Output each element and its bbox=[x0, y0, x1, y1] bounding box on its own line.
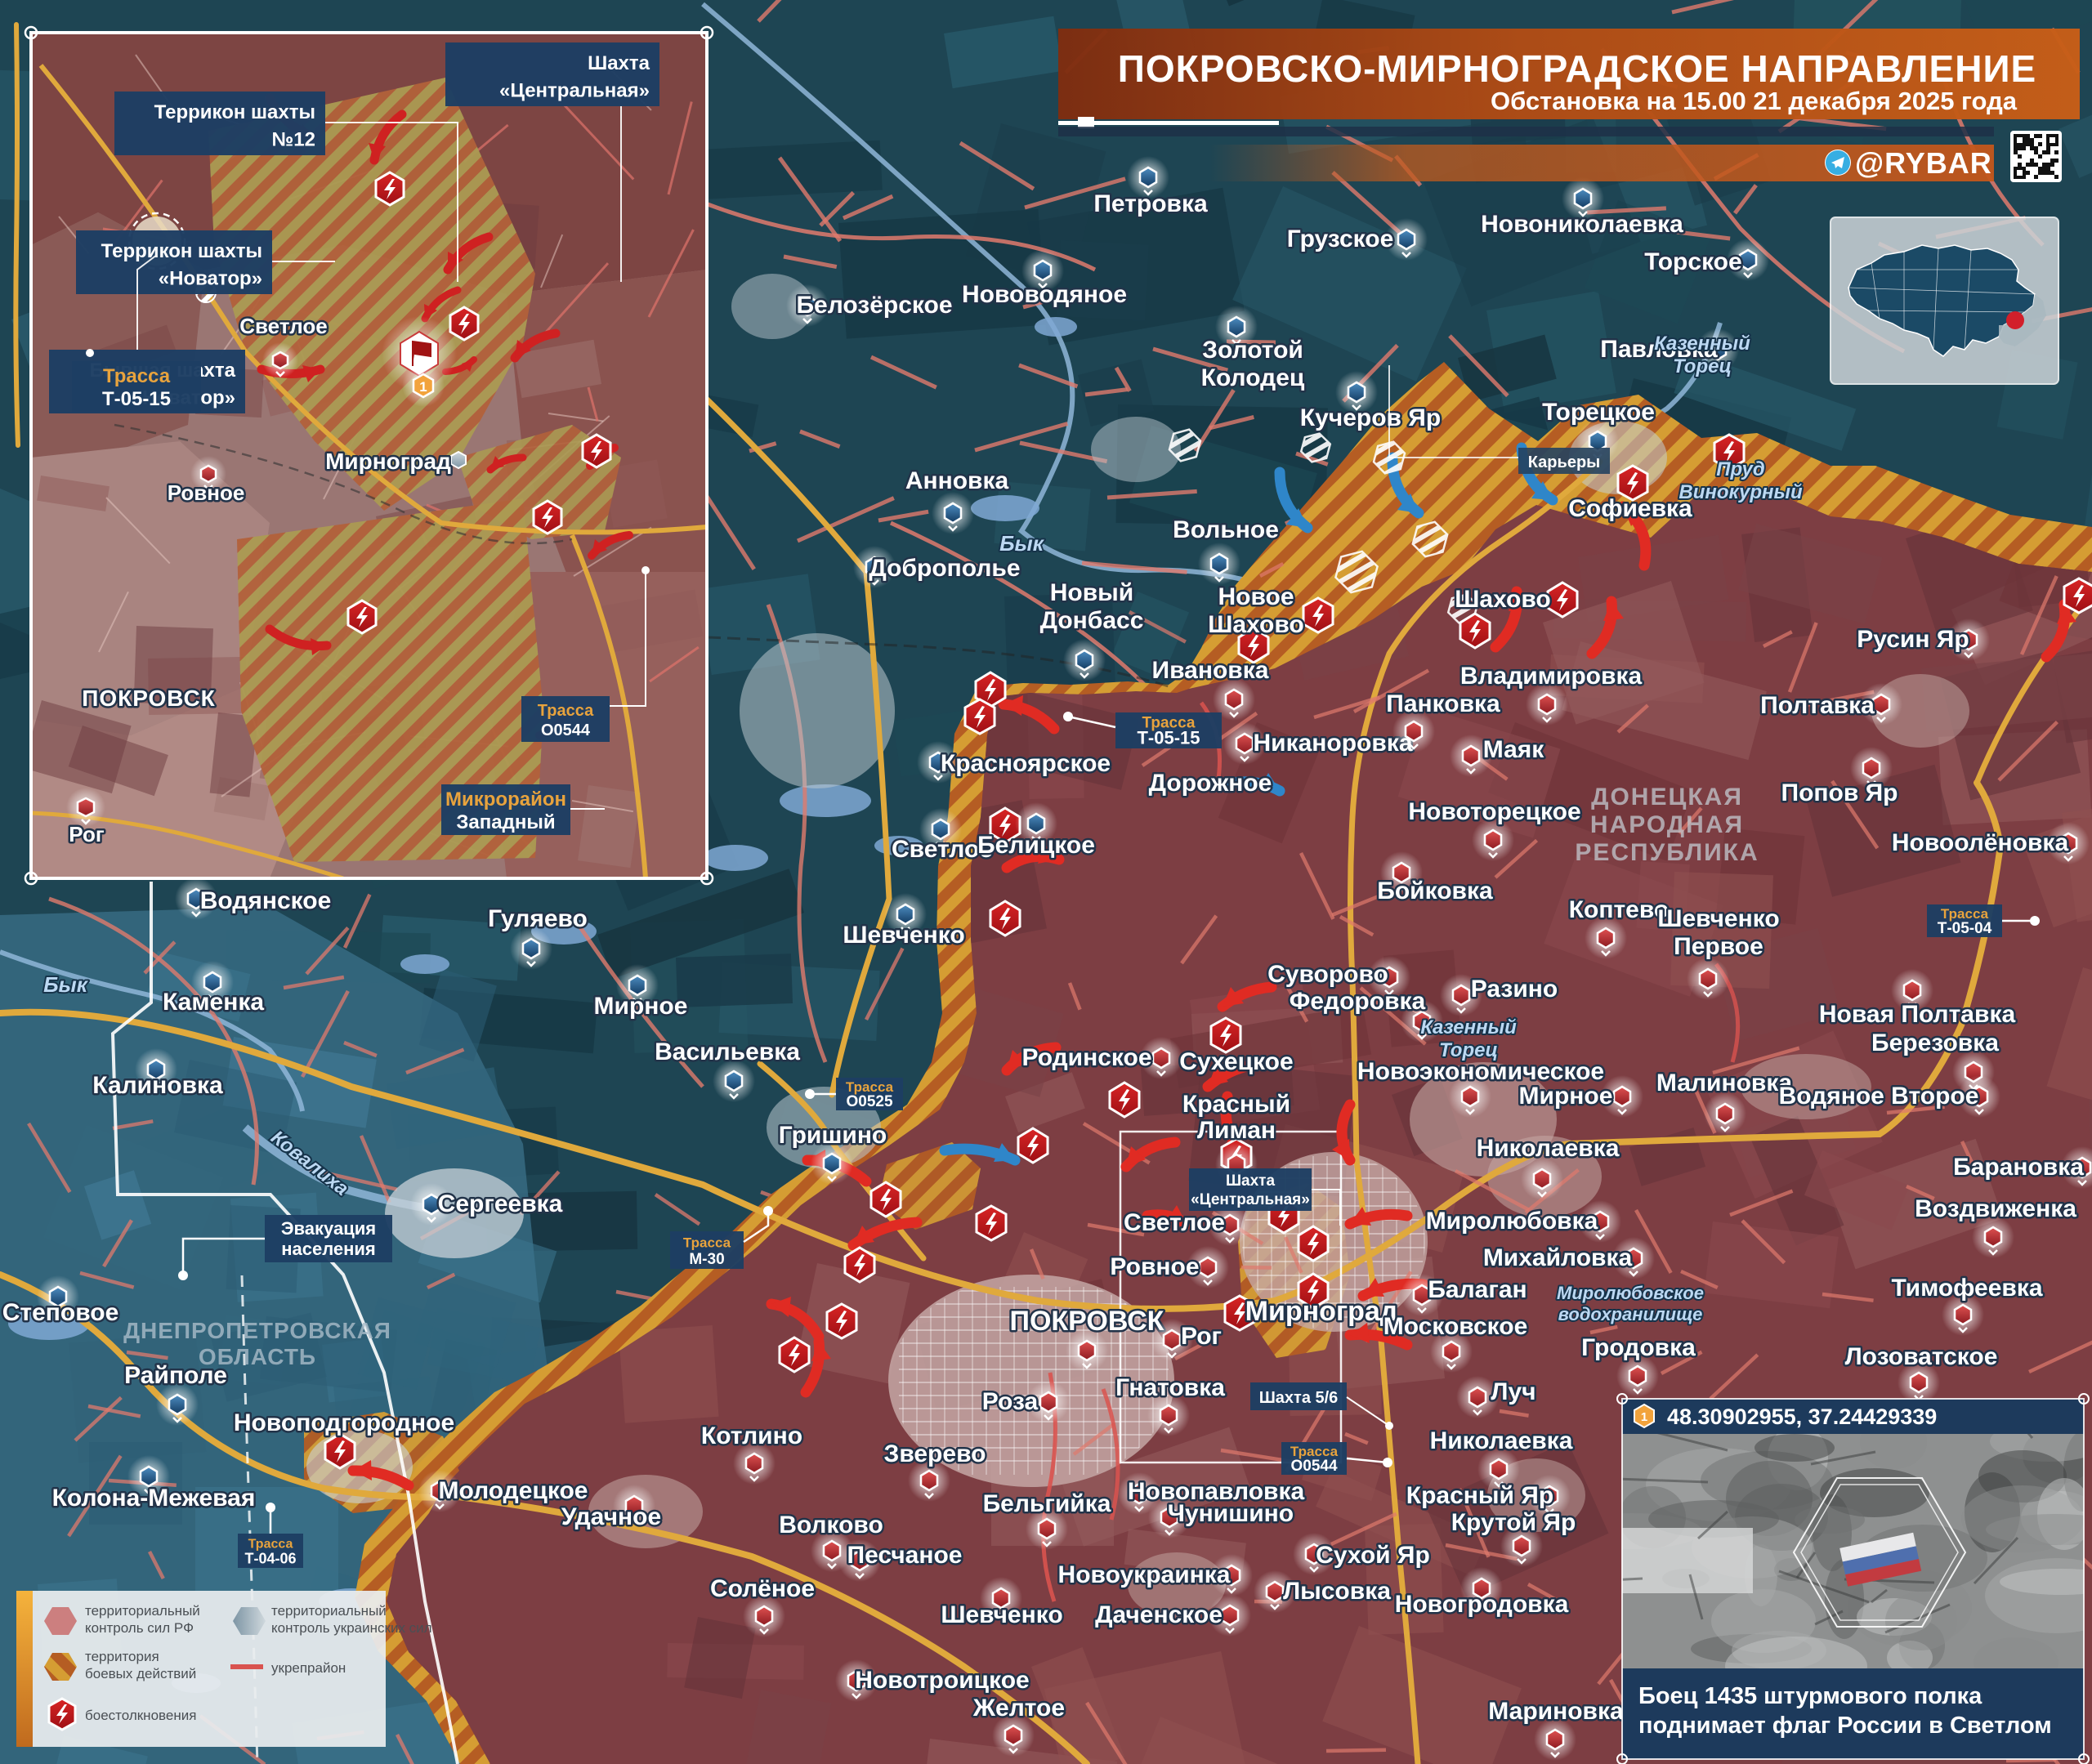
svg-text:Удачное: Удачное bbox=[561, 1503, 661, 1530]
svg-text:Коптево: Коптево bbox=[1569, 896, 1670, 923]
svg-text:Крутой Яр: Крутой Яр bbox=[1451, 1509, 1576, 1536]
svg-text:контроль украинских сил: контроль украинских сил bbox=[271, 1620, 432, 1636]
svg-text:Песчаное: Песчаное bbox=[847, 1542, 963, 1569]
svg-text:Шевченко: Шевченко bbox=[843, 922, 964, 949]
svg-text:Калиновка: Калиновка bbox=[92, 1072, 223, 1099]
svg-text:1: 1 bbox=[419, 379, 427, 395]
svg-text:Колона-Межевая: Колона-Межевая bbox=[52, 1485, 256, 1512]
svg-text:Анновка: Анновка bbox=[905, 467, 1009, 494]
svg-text:Трасса: Трасса bbox=[103, 365, 171, 387]
svg-text:Карьеры: Карьеры bbox=[1528, 453, 1601, 471]
svg-text:Т-05-15: Т-05-15 bbox=[1137, 727, 1200, 748]
svg-text:Даченское: Даченское bbox=[1095, 1601, 1223, 1628]
svg-text:Михайловка: Михайловка bbox=[1483, 1244, 1633, 1271]
svg-text:Новый: Новый bbox=[1050, 579, 1134, 606]
svg-text:Новоподгородное: Новоподгородное bbox=[234, 1409, 454, 1436]
svg-text:контроль сил РФ: контроль сил РФ bbox=[85, 1620, 194, 1636]
svg-text:Гришино: Гришино bbox=[779, 1122, 887, 1149]
svg-text:Пруд: Пруд bbox=[1716, 458, 1764, 480]
svg-text:Родинское: Родинское bbox=[1021, 1044, 1151, 1071]
svg-text:территориальный: территориальный bbox=[85, 1603, 200, 1619]
svg-text:Новоукраинка: Новоукраинка bbox=[1058, 1561, 1231, 1588]
svg-text:Микрорайон: Микрорайон bbox=[445, 788, 566, 811]
svg-text:Трасса: Трасса bbox=[538, 702, 594, 720]
svg-text:поднимает флаг России в Светло: поднимает флаг России в Светлом bbox=[1638, 1713, 2052, 1739]
svg-text:Каменка: Каменка bbox=[163, 989, 264, 1016]
svg-text:Разино: Разино bbox=[1471, 976, 1558, 1003]
svg-text:Сухецкое: Сухецкое bbox=[1179, 1048, 1293, 1075]
svg-text:Водяное Второе: Водяное Второе bbox=[1779, 1083, 1979, 1110]
svg-text:Мирное: Мирное bbox=[594, 993, 688, 1020]
svg-text:Т-05-15: Т-05-15 bbox=[102, 388, 171, 410]
svg-text:Торское: Торское bbox=[1644, 248, 1741, 275]
svg-text:Воздвиженка: Воздвиженка bbox=[1915, 1195, 2076, 1222]
svg-text:Дорожное: Дорожное bbox=[1149, 770, 1272, 797]
svg-text:Маяк: Маяк bbox=[1483, 736, 1545, 763]
svg-text:48.30902955, 37.24429339: 48.30902955, 37.24429339 bbox=[1667, 1405, 1937, 1429]
svg-text:Лозоватское: Лозоватское bbox=[1845, 1343, 1998, 1370]
svg-text:Бельгийка: Бельгийка bbox=[983, 1490, 1111, 1517]
svg-text:ОБЛАСТЬ: ОБЛАСТЬ bbox=[199, 1344, 316, 1369]
svg-text:Шевченко: Шевченко bbox=[941, 1601, 1062, 1628]
svg-text:Трасса: Трасса bbox=[683, 1235, 731, 1250]
svg-text:Казенный: Казенный bbox=[1654, 333, 1750, 355]
svg-text:Рог: Рог bbox=[69, 822, 105, 846]
svg-text:Новоэкономическое: Новоэкономическое bbox=[1357, 1058, 1604, 1085]
svg-text:Сухой Яр: Сухой Яр bbox=[1316, 1542, 1430, 1569]
svg-text:Софиевка: Софиевка bbox=[1568, 495, 1692, 522]
svg-text:Владимировка: Владимировка bbox=[1460, 663, 1643, 690]
svg-text:Шахта 5/6: Шахта 5/6 bbox=[1259, 1389, 1339, 1407]
svg-text:М-30: М-30 bbox=[689, 1251, 724, 1268]
svg-text:Лысовка: Лысовка bbox=[1283, 1578, 1391, 1605]
svg-text:Рог: Рог bbox=[1181, 1323, 1222, 1350]
svg-text:Кучеров Яр: Кучеров Яр bbox=[1300, 404, 1441, 431]
svg-text:«Центральная»: «Центральная» bbox=[499, 79, 650, 101]
svg-text:Казенный: Казенный bbox=[1420, 1016, 1517, 1038]
svg-text:Миролюбовка: Миролюбовка bbox=[1426, 1208, 1598, 1235]
svg-text:Желтое: Желтое bbox=[972, 1695, 1065, 1722]
svg-text:Гродовка: Гродовка bbox=[1581, 1334, 1696, 1361]
svg-text:Федоровка: Федоровка bbox=[1290, 988, 1426, 1015]
svg-text:Т-04-06: Т-04-06 bbox=[244, 1551, 296, 1567]
svg-text:ПОКРОВСКО-МИРНОГРАДСКОЕ НАПРАВ: ПОКРОВСКО-МИРНОГРАДСКОЕ НАПРАВЛЕНИЕ bbox=[1118, 47, 2036, 90]
svg-text:Бык: Бык bbox=[999, 531, 1045, 556]
svg-text:Красноярское: Красноярское bbox=[941, 750, 1111, 777]
svg-text:Никаноровка: Никаноровка bbox=[1253, 730, 1412, 757]
svg-text:Солёное: Солёное bbox=[710, 1575, 815, 1602]
svg-text:Молодецкое: Молодецкое bbox=[439, 1477, 588, 1504]
svg-text:Нововодяное: Нововодяное bbox=[962, 281, 1127, 308]
svg-text:Шахово: Шахово bbox=[1208, 611, 1303, 638]
svg-text:Ровное: Ровное bbox=[1110, 1253, 1199, 1280]
svg-text:Вольное: Вольное bbox=[1173, 516, 1279, 543]
svg-text:О0544: О0544 bbox=[541, 721, 591, 739]
svg-text:Террикон шахты: Террикон шахты bbox=[101, 240, 262, 262]
svg-text:Малиновка: Малиновка bbox=[1656, 1070, 1792, 1096]
svg-text:ДОНЕЦКАЯ: ДОНЕЦКАЯ bbox=[1591, 784, 1743, 811]
svg-text:Эвакуация: Эвакуация bbox=[281, 1218, 376, 1239]
svg-text:Барановка: Барановка bbox=[1953, 1154, 2084, 1181]
svg-text:Шевченко: Шевченко bbox=[1657, 905, 1779, 932]
svg-text:Грузское: Грузское bbox=[1287, 226, 1394, 252]
svg-text:1: 1 bbox=[1641, 1410, 1647, 1424]
svg-text:Котлино: Котлино bbox=[701, 1422, 802, 1449]
svg-text:Ивановка: Ивановка bbox=[1152, 657, 1269, 684]
svg-text:Шахта: Шахта bbox=[1226, 1172, 1276, 1190]
svg-text:Бойковка: Бойковка bbox=[1377, 878, 1493, 904]
svg-text:Николаевка: Николаевка bbox=[1477, 1135, 1620, 1162]
svg-text:Сергеевка: Сергеевка bbox=[438, 1190, 563, 1217]
svg-text:Торец: Торец bbox=[1439, 1039, 1498, 1061]
svg-text:Зверево: Зверево bbox=[884, 1440, 986, 1467]
svg-text:Балаган: Балаган bbox=[1428, 1276, 1527, 1303]
svg-text:Луч: Луч bbox=[1491, 1378, 1535, 1405]
svg-text:Полтавка: Полтавка bbox=[1760, 692, 1875, 719]
svg-text:Панковка: Панковка bbox=[1386, 690, 1500, 717]
svg-text:Мирноград: Мирноград bbox=[325, 449, 451, 474]
svg-text:«Центральная»: «Центральная» bbox=[1191, 1191, 1310, 1208]
svg-text:Степовое: Степовое bbox=[2, 1299, 119, 1326]
svg-text:Светлое: Светлое bbox=[239, 314, 327, 338]
svg-text:Московское: Московское bbox=[1383, 1313, 1528, 1340]
svg-text:Трасса: Трасса bbox=[248, 1538, 293, 1552]
svg-text:О0525: О0525 bbox=[846, 1093, 892, 1110]
svg-text:Новоторецкое: Новоторецкое bbox=[1408, 798, 1580, 825]
svg-text:Попов Яр: Попов Яр bbox=[1781, 779, 1898, 806]
svg-text:Гуляево: Гуляево bbox=[488, 905, 588, 932]
svg-text:Торец: Торец bbox=[1673, 355, 1732, 377]
svg-text:Белицкое: Белицкое bbox=[977, 832, 1095, 859]
svg-text:Роза: Роза bbox=[982, 1388, 1039, 1415]
svg-text:ДНЕПРОПЕТРОВСКАЯ: ДНЕПРОПЕТРОВСКАЯ bbox=[123, 1318, 391, 1343]
svg-text:населения: населения bbox=[281, 1239, 376, 1259]
svg-text:Светлое: Светлое bbox=[1124, 1209, 1225, 1236]
svg-text:Мариновка: Мариновка bbox=[1488, 1698, 1624, 1725]
svg-text:Торецкое: Торецкое bbox=[1542, 399, 1655, 426]
svg-text:Винокурный: Винокурный bbox=[1679, 481, 1803, 503]
svg-text:Николаевка: Николаевка bbox=[1430, 1427, 1573, 1454]
svg-text:Красный Яр: Красный Яр bbox=[1406, 1482, 1553, 1509]
svg-text:Ровное: Ровное bbox=[168, 480, 245, 505]
svg-text:НАРОДНАЯ: НАРОДНАЯ bbox=[1590, 811, 1744, 838]
svg-text:Колодец: Колодец bbox=[1201, 364, 1305, 391]
svg-text:Новониколаевка: Новониколаевка bbox=[1481, 211, 1683, 238]
svg-text:Суворово: Суворово bbox=[1267, 961, 1388, 988]
svg-text:@RYBAR: @RYBAR bbox=[1855, 146, 1992, 180]
svg-text:Березовка: Березовка bbox=[1871, 1029, 1999, 1056]
svg-text:Красный: Красный bbox=[1182, 1091, 1290, 1118]
svg-text:Новоолёновка: Новоолёновка bbox=[1892, 829, 2069, 856]
svg-text:Доброполье: Доброполье bbox=[869, 555, 1020, 582]
svg-text:Гнатовка: Гнатовка bbox=[1115, 1374, 1225, 1401]
svg-text:Мирное: Мирное bbox=[1519, 1083, 1613, 1110]
svg-text:Миролюбовское: Миролюбовское bbox=[1557, 1283, 1704, 1303]
svg-text:№12: №12 bbox=[272, 128, 315, 150]
svg-text:Мирноград: Мирноград bbox=[1245, 1296, 1398, 1327]
svg-text:Васильевка: Васильевка bbox=[655, 1038, 800, 1065]
svg-text:Водянское: Водянское bbox=[200, 887, 332, 914]
svg-text:О0544: О0544 bbox=[1290, 1458, 1337, 1475]
svg-text:Т-05-04: Т-05-04 bbox=[1938, 920, 1992, 937]
svg-text:РЕСПУБЛИКА: РЕСПУБЛИКА bbox=[1575, 839, 1759, 866]
svg-text:укрепрайон: укрепрайон bbox=[271, 1660, 346, 1676]
svg-text:Новая Полтавка: Новая Полтавка bbox=[1819, 1001, 2016, 1028]
svg-text:Боец 1435 штурмового полка: Боец 1435 штурмового полка bbox=[1638, 1683, 1982, 1709]
svg-text:Белозёрское: Белозёрское bbox=[796, 292, 952, 319]
svg-text:Западный: Западный bbox=[456, 811, 555, 833]
svg-text:боестолкновения: боестолкновения bbox=[85, 1708, 196, 1723]
svg-text:Новотроицкое: Новотроицкое bbox=[855, 1667, 1029, 1694]
svg-text:Лиман: Лиман bbox=[1197, 1117, 1276, 1144]
svg-text:Террикон шахты: Террикон шахты bbox=[154, 101, 315, 123]
svg-text:Петровка: Петровка bbox=[1093, 190, 1208, 217]
svg-text:Новогродовка: Новогродовка bbox=[1395, 1591, 1569, 1618]
svg-text:Бык: Бык bbox=[43, 972, 89, 997]
svg-text:Обстановка на 15.00 21 декабря: Обстановка на 15.00 21 декабря 2025 года bbox=[1491, 87, 2018, 115]
svg-text:Чунишино: Чунишино bbox=[1168, 1500, 1294, 1527]
svg-text:ПОКРОВСК: ПОКРОВСК bbox=[1010, 1306, 1164, 1337]
svg-text:территориальный: территориальный bbox=[271, 1603, 387, 1619]
svg-text:Золотой: Золотой bbox=[1202, 337, 1303, 364]
svg-text:Шахово: Шахово bbox=[1455, 586, 1550, 613]
svg-text:боевых действий: боевых действий bbox=[85, 1666, 196, 1681]
svg-text:«Новатор»: «Новатор» bbox=[159, 267, 262, 289]
svg-text:Тимофеевка: Тимофеевка bbox=[1891, 1275, 2042, 1302]
svg-text:Волково: Волково bbox=[779, 1512, 883, 1538]
svg-text:Донбасс: Донбасс bbox=[1040, 607, 1144, 634]
svg-text:водохранилище: водохранилище bbox=[1558, 1304, 1703, 1324]
svg-text:ПОКРОВСК: ПОКРОВСК bbox=[82, 686, 216, 711]
svg-text:территория: территория bbox=[85, 1649, 159, 1664]
svg-text:Русин Яр: Русин Яр bbox=[1857, 626, 1969, 653]
svg-text:Первое: Первое bbox=[1674, 933, 1763, 960]
svg-text:Шахта: Шахта bbox=[588, 52, 650, 74]
svg-text:Новое: Новое bbox=[1218, 583, 1294, 610]
